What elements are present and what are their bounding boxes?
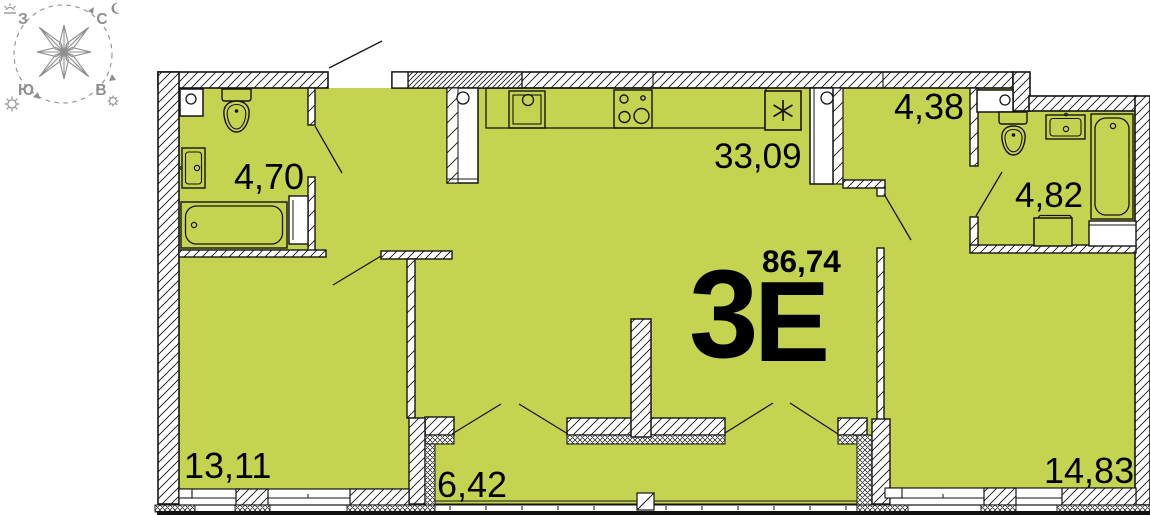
svg-text:4,38: 4,38 xyxy=(894,86,964,127)
svg-text:33,09: 33,09 xyxy=(714,137,802,176)
svg-text:Е: Е xyxy=(754,259,830,386)
svg-text:З: З xyxy=(18,11,28,28)
svg-text:4,82: 4,82 xyxy=(1015,176,1083,215)
svg-text:13,11: 13,11 xyxy=(184,445,271,486)
svg-text:Ю: Ю xyxy=(18,82,34,99)
svg-text:С: С xyxy=(96,11,107,28)
svg-text:4,70: 4,70 xyxy=(234,156,304,197)
svg-text:3: 3 xyxy=(689,245,759,384)
svg-text:14,83: 14,83 xyxy=(1044,450,1134,491)
svg-text:В: В xyxy=(95,82,106,99)
svg-text:6,42: 6,42 xyxy=(437,464,507,505)
